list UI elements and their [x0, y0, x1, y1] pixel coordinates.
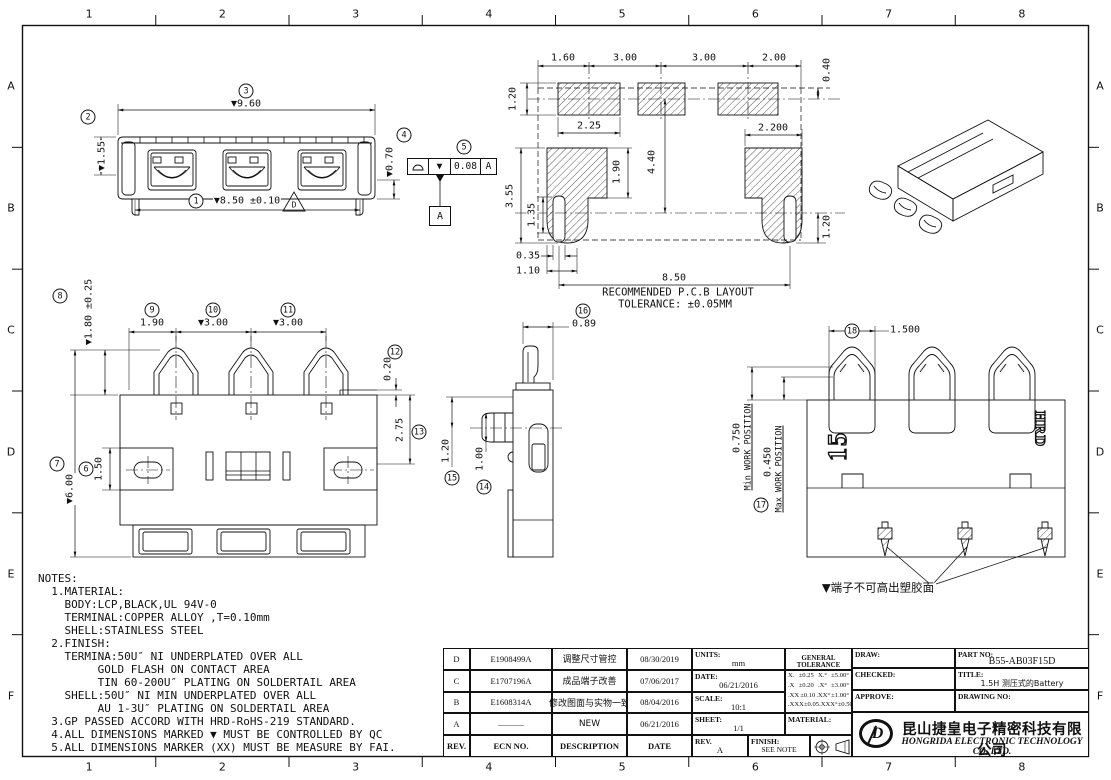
company-logo: D: [859, 719, 893, 748]
note-line-4: SHELL:STAINLESS STEEL: [38, 624, 396, 637]
units-value: mm: [693, 658, 784, 668]
balloon-12: 12: [388, 345, 403, 360]
dim-r_min: Min WORK POSITION: [744, 403, 755, 492]
drawing-sheet: ▼9.60▼1.55▼8.50 ±0.10▼0.701.603.003.002.…: [0, 0, 1111, 780]
tol-angular-2-0: .XX°: [816, 691, 830, 701]
dim-r_1500: 1.500: [889, 325, 921, 336]
balloon-3: 3: [239, 84, 254, 99]
rev-row-1-ecn: E1707196A: [470, 670, 552, 692]
rev-header-date: DATE: [627, 735, 692, 757]
tol-linear-3-1: ±0.05: [804, 700, 819, 710]
dim-r_0450: 0.450: [763, 446, 774, 478]
zone-col-bottom-7: 7: [885, 761, 892, 774]
dim-t_150: 1.50: [94, 456, 105, 482]
zone-row-right-E: E: [1097, 567, 1104, 580]
dim-p_355: 3.55: [505, 183, 516, 209]
zone-row-right-D: D: [1096, 445, 1104, 458]
finish-value: SEE NOTE: [749, 745, 809, 754]
tol-angular-1-0: .X°: [818, 681, 827, 691]
tol-angular-3-0: .XXX°: [819, 700, 838, 710]
balloon-11: 11: [281, 303, 296, 318]
zone-row-left-C: C: [7, 324, 15, 337]
note-line-7: GOLD FLASH ON CONTACT AREA: [38, 663, 396, 676]
zone-row-left-D: D: [7, 445, 15, 458]
dim-p_120l: 1.20: [508, 86, 519, 112]
zone-col-top-6: 6: [752, 8, 759, 21]
dim-p_850: 8.50: [661, 273, 687, 284]
note-line-5: 2.FINISH:: [38, 637, 396, 650]
projection-symbols-icon: [812, 737, 852, 757]
rev-header-ecn: ECN NO.: [470, 735, 552, 757]
rev-row-0-rev: D: [443, 648, 470, 670]
tolerance-row-1: .X±0.20.X°±3.00°: [786, 681, 851, 691]
dim-pcb_cap1: RECOMMENDED P.C.B LAYOUT: [601, 288, 755, 299]
scale-value: 10:1: [693, 702, 784, 712]
balloon-5: 5: [457, 140, 472, 155]
balloon-10: 10: [206, 303, 221, 318]
rev-cell: REV. A: [692, 735, 748, 757]
rev-row-1-rev: C: [443, 670, 470, 692]
balloon-13: 13: [412, 425, 427, 440]
zone-col-bottom-3: 3: [352, 761, 359, 774]
zone-col-top-4: 4: [485, 8, 492, 21]
tol-angular-0-0: X.°: [818, 671, 827, 681]
rev-row-2-date: 08/04/2016: [627, 692, 692, 714]
zone-row-right-B: B: [1096, 202, 1104, 215]
dim-s_100: 1.00: [475, 446, 486, 472]
dim-p_135: 1.35: [527, 202, 538, 228]
dim-p_2200: 2.200: [757, 123, 789, 134]
approve-label: APPROVE:: [855, 692, 894, 701]
dim-r_0750: 0.750: [732, 422, 743, 454]
dim-p_300a: 3.00: [612, 53, 638, 64]
tol-angular-3-1: ±0.50°: [838, 700, 852, 710]
rev-row-2-desc: 修改图面与实物一致: [552, 692, 627, 714]
dim-t_300b: ▼3.00: [272, 318, 304, 329]
scale-cell: SCALE: 10:1: [692, 692, 785, 713]
date-value: 06/21/2016: [693, 680, 784, 690]
gdt-tolerance: 0.08: [451, 158, 481, 175]
note-line-3: TERMINAL:COPPER ALLOY ,T=0.10mm: [38, 611, 396, 624]
rev-row-3-date: 06/21/2016: [627, 713, 692, 735]
profile-symbol-icon: [407, 158, 429, 175]
balloon-18: 18: [845, 324, 860, 339]
title-value: 1.5H 测压式的Battery: [956, 678, 1088, 689]
tolerance-row-0: X.±0.25X.°±5.00°: [786, 671, 851, 681]
rev-row-2-rev: B: [443, 692, 470, 714]
note-line-9: SHELL:50U″ NI MIN UNDERPLATED OVER ALL: [38, 689, 396, 702]
balloon-15: 15: [445, 471, 460, 486]
units-cell: UNITS: mm: [692, 648, 785, 670]
dim-r_hrd: HRD: [1031, 410, 1048, 448]
balloon-9: 9: [145, 303, 160, 318]
note-line-0: NOTES:: [38, 572, 396, 585]
rev-header-rev: REV.: [443, 735, 470, 757]
dim-r_15: 15: [823, 430, 853, 462]
zone-col-bottom-5: 5: [619, 761, 626, 774]
finish-cell: FINISH: SEE NOTE: [748, 735, 810, 757]
dim-f_155: ▼1.55: [97, 140, 108, 172]
dim-pcb_cap2: TOLERANCE: ±0.05MM: [617, 300, 733, 311]
tol-angular-1-1: ±3.00°: [831, 681, 849, 691]
dim-p_190: 1.90: [612, 159, 623, 185]
notes-block: NOTES: 1.MATERIAL: BODY:LCP,BLACK,UL 94V…: [38, 572, 396, 754]
zone-row-left-E: E: [8, 567, 15, 580]
zone-col-top-2: 2: [219, 8, 226, 21]
dim-s_089: 0.89: [571, 319, 597, 330]
note-line-11: 3.GP PASSED ACCORD WITH HRD-RoHS-219 STA…: [38, 715, 396, 728]
zone-row-left-A: A: [7, 80, 15, 93]
zone-col-top-8: 8: [1018, 8, 1025, 21]
note-line-1: 1.MATERIAL:: [38, 585, 396, 598]
balloon-14: 14: [477, 480, 492, 495]
revision-flag-d: D: [292, 201, 297, 210]
checked-cell: CHECKED:: [852, 668, 955, 690]
sheet-cell: SHEET: 1/1: [692, 713, 785, 735]
tol-linear-0-0: X.: [788, 671, 794, 681]
rev-header-desc: DESCRIPTION: [552, 735, 627, 757]
dim-p_440: 4.40: [647, 149, 658, 175]
zone-col-bottom-8: 8: [1018, 761, 1025, 774]
gdt-feature-control-frame: ▼ 0.08 A: [407, 158, 497, 175]
partno-cell: PART NO: B55-AB03F15D: [955, 648, 1089, 668]
tolerance-header-cell: GENERAL TOLERANCE: [785, 648, 852, 670]
dim-t_275: 2.75: [395, 417, 406, 443]
rev-row-1-desc: 成品端子改善: [552, 670, 627, 692]
tol-linear-1-1: ±0.20: [799, 681, 814, 691]
tolerance-row-2: .XX±0.10.XX°±1.00°: [786, 691, 851, 701]
material-label: MATERIAL:: [788, 715, 831, 724]
sheet-value: 1/1: [693, 723, 784, 733]
partno-value: B55-AB03F15D: [956, 656, 1088, 667]
rev-row-3-rev: A: [443, 713, 470, 735]
rev-row-0-desc: 调整尺寸管控: [552, 648, 627, 670]
note-line-13: 5.ALL DIMENSIONS MARKER (XX) MUST BE MEA…: [38, 741, 396, 754]
dim-t_300a: ▼3.00: [197, 318, 229, 329]
balloon-1: 1: [189, 194, 204, 209]
zone-row-right-C: C: [1096, 324, 1104, 337]
dim-t_600: ▼6.00: [65, 473, 76, 505]
zone-col-bottom-6: 6: [752, 761, 759, 774]
dim-f_070: ▼0.70: [385, 146, 396, 178]
rev-row-0-date: 08/30/2019: [627, 648, 692, 670]
dim-p_035: 0.35: [515, 251, 541, 262]
zone-col-top-5: 5: [619, 8, 626, 21]
dim-p_040: 0.40: [822, 57, 833, 83]
projection-cell: [810, 735, 852, 757]
zone-col-bottom-4: 4: [485, 761, 492, 774]
dim-f_960: ▼9.60: [230, 99, 262, 110]
dim-p_225: 2.25: [576, 121, 602, 132]
note-line-8: TIN 60-200U″ PLATING ON SOLDERTAIL AREA: [38, 676, 396, 689]
tolerance-values-cell: X.±0.25X.°±5.00°.X±0.20.X°±3.00°.XX±0.10…: [785, 670, 852, 713]
tol-linear-3-0: .XXX: [788, 700, 804, 710]
rev-row-0-ecn: E1908499A: [470, 648, 552, 670]
dim-r_note: ▼端子不可高出塑胶面: [821, 583, 935, 594]
tol-linear-2-1: ±0.10: [800, 691, 815, 701]
zone-col-bottom-2: 2: [219, 761, 226, 774]
rev-row-3-ecn: ———: [470, 713, 552, 735]
draw-cell: DRAW:: [852, 648, 955, 668]
gdt-qc-mark: ▼: [429, 158, 451, 175]
tol-angular-0-1: ±5.00°: [831, 671, 849, 681]
zone-row-right-F: F: [1097, 689, 1103, 702]
balloon-8: 8: [53, 289, 68, 304]
dim-p_110: 1.10: [515, 266, 541, 277]
balloon-16: 16: [576, 304, 591, 319]
zone-row-left-F: F: [8, 689, 14, 702]
dim-t_190: 1.90: [139, 318, 165, 329]
tol-linear-1-0: .X: [788, 681, 794, 691]
balloon-6: 6: [79, 462, 94, 477]
dim-p_120r: 1.20: [822, 214, 833, 240]
company-name-en: HONGRIDA ELECTRONIC TECHNOLOGY CO, LTD.: [899, 737, 1085, 757]
dim-p_160: 1.60: [550, 53, 576, 64]
rev-value: A: [693, 745, 747, 755]
zone-col-top-1: 1: [86, 8, 93, 21]
dim-t_180: ▼1.80 ±0.25: [84, 278, 95, 346]
company-cell: D 昆山捷皇电子精密科技有限公司 HONGRIDA ELECTRONIC TEC…: [852, 712, 1089, 757]
gdt-datum-ref: A: [481, 158, 497, 175]
balloon-17: 17: [754, 498, 769, 513]
dim-p_200: 2.00: [761, 53, 787, 64]
dim-r_max: Max WORK POSITION: [775, 425, 786, 514]
drawingno-label: DRAWING NO:: [958, 692, 1011, 701]
rev-row-1-date: 07/06/2017: [627, 670, 692, 692]
rev-row-2-ecn: E1608314A: [470, 692, 552, 714]
tol-linear-0-1: ±0.25: [799, 671, 814, 681]
balloon-4: 4: [397, 128, 412, 143]
tolerance-row-3: .XXX±0.05.XXX°±0.50°: [786, 700, 851, 710]
dim-s_120: 1.20: [441, 438, 452, 464]
balloon-7: 7: [50, 457, 65, 472]
note-line-2: BODY:LCP,BLACK,UL 94V-0: [38, 598, 396, 611]
zone-col-top-7: 7: [885, 8, 892, 21]
zone-col-bottom-1: 1: [86, 761, 93, 774]
material-cell: MATERIAL:: [785, 713, 852, 735]
title-cell: TITLE: 1.5H 测压式的Battery: [955, 668, 1089, 690]
date-cell: DATE: 06/21/2016: [692, 670, 785, 692]
datum-a-box: A: [429, 206, 451, 226]
approve-cell: APPROVE:: [852, 690, 955, 712]
checked-label: CHECKED:: [855, 670, 895, 679]
drawingno-cell: DRAWING NO:: [955, 690, 1089, 712]
zone-col-top-3: 3: [352, 8, 359, 21]
tol-angular-2-1: ±1.00°: [831, 691, 849, 701]
rev-row-3-desc: NEW: [552, 713, 627, 735]
zone-row-right-A: A: [1096, 80, 1104, 93]
draw-label: DRAW:: [855, 650, 880, 659]
note-line-12: 4.ALL DIMENSIONS MARKED ▼ MUST BE CONTRO…: [38, 728, 396, 741]
balloon-2: 2: [81, 110, 96, 125]
dim-f_850: ▼8.50 ±0.10: [213, 196, 281, 207]
note-line-6: TERMINA:50U″ NI UNDERPLATED OVER ALL: [38, 650, 396, 663]
tolerance-title: GENERAL TOLERANCE: [786, 655, 851, 669]
dim-p_300b: 3.00: [691, 53, 717, 64]
tol-linear-2-0: .XX: [788, 691, 799, 701]
zone-row-left-B: B: [7, 202, 15, 215]
note-line-10: AU 1-3U″ PLATING ON SOLDERTAIL AREA: [38, 702, 396, 715]
dim-t_020: 0.20: [383, 356, 394, 382]
